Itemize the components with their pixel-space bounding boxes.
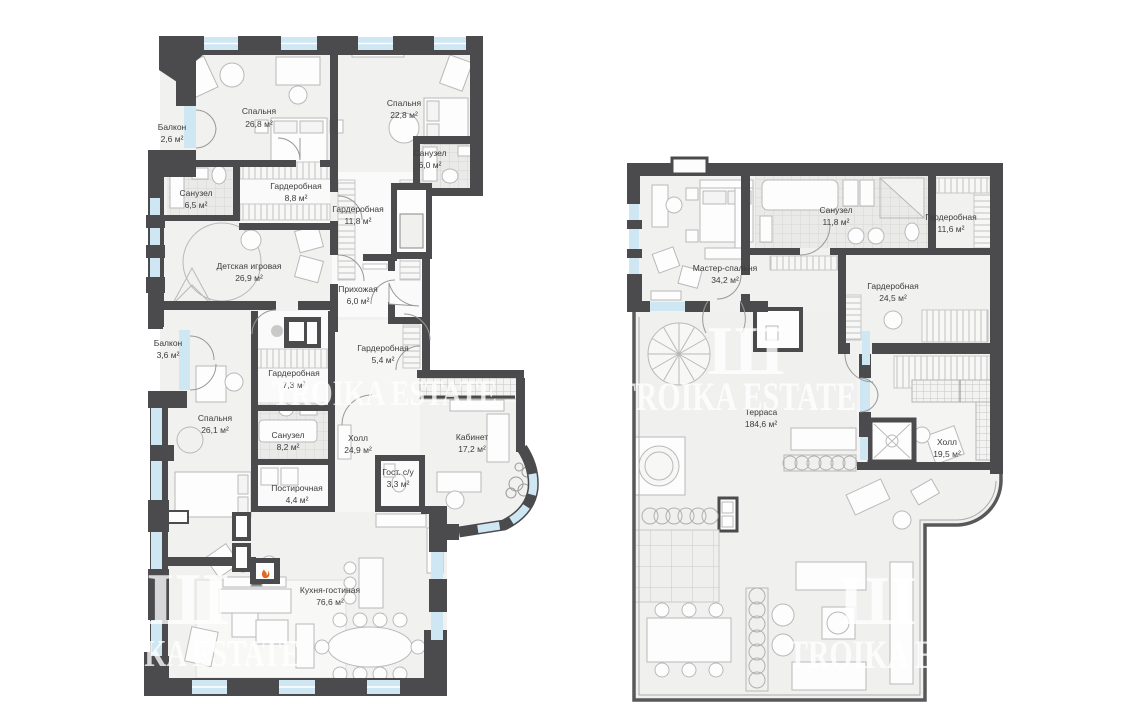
svg-text:Балкон: Балкон [158, 122, 187, 132]
svg-text:Гардеробная: Гардеробная [357, 343, 409, 353]
svg-text:Кухня-гостиная: Кухня-гостиная [300, 585, 361, 595]
svg-text:TROIKA ESTATE: TROIKA ESTATE [272, 373, 497, 413]
svg-text:8,8 м²: 8,8 м² [285, 193, 308, 203]
svg-text:3,6 м²: 3,6 м² [157, 350, 180, 360]
svg-text:11,8 м²: 11,8 м² [345, 216, 372, 226]
svg-text:Санузел: Санузел [179, 188, 212, 198]
svg-text:34,2 м²: 34,2 м² [711, 275, 739, 285]
svg-text:3,3 м²: 3,3 м² [387, 479, 410, 489]
svg-text:26,1 м²: 26,1 м² [201, 425, 229, 435]
svg-text:Кабинет: Кабинет [456, 432, 488, 442]
svg-text:4,4 м²: 4,4 м² [286, 495, 309, 505]
svg-text:22,8 м²: 22,8 м² [390, 110, 418, 120]
svg-text:Гардеробная: Гардеробная [332, 204, 384, 214]
svg-text:Санузел: Санузел [271, 430, 304, 440]
svg-text:17,2 м²: 17,2 м² [458, 444, 486, 454]
svg-text:Спальня: Спальня [198, 413, 233, 423]
svg-text:19,5 м²: 19,5 м² [933, 449, 961, 459]
svg-text:26,8 м²: 26,8 м² [245, 119, 273, 129]
svg-text:Мастер-спальня: Мастер-спальня [693, 263, 758, 273]
svg-text:6,5 м²: 6,5 м² [185, 200, 208, 210]
svg-text:8,2 м²: 8,2 м² [277, 442, 300, 452]
svg-text:TROIKA ESTATE: TROIKA ESTATE [72, 633, 300, 675]
svg-text:Гост. с/у: Гост. с/у [382, 467, 414, 477]
svg-text:Гардеробная: Гардеробная [270, 181, 322, 191]
svg-text:TROIKA ESTATE: TROIKA ESTATE [788, 632, 1028, 677]
svg-text:26,9 м²: 26,9 м² [235, 273, 263, 283]
svg-text:Прихожая: Прихожая [338, 284, 378, 294]
svg-text:Спальня: Спальня [242, 106, 277, 116]
svg-text:2,6 м²: 2,6 м² [161, 134, 184, 144]
svg-text:Санузел: Санузел [413, 148, 446, 158]
svg-text:Холл: Холл [348, 433, 368, 443]
svg-text:Гардеробная: Гардеробная [867, 281, 919, 291]
svg-text:6,0 м²: 6,0 м² [419, 160, 442, 170]
svg-text:5,4 м²: 5,4 м² [372, 355, 395, 365]
svg-text:24,9 м²: 24,9 м² [344, 445, 372, 455]
svg-text:Санузел: Санузел [819, 205, 852, 215]
svg-text:Ш: Ш [147, 559, 228, 641]
svg-text:11,6 м²: 11,6 м² [938, 224, 965, 234]
svg-text:24,5 м²: 24,5 м² [879, 293, 907, 303]
svg-text:6,0 м²: 6,0 м² [347, 296, 370, 306]
svg-text:184,6 м²: 184,6 м² [745, 419, 777, 429]
svg-text:Холл: Холл [937, 437, 957, 447]
svg-text:Детская игровая: Детская игровая [217, 261, 282, 271]
svg-text:Гардеробная: Гардеробная [925, 212, 977, 222]
svg-text:76,6 м²: 76,6 м² [316, 597, 344, 607]
svg-text:Спальня: Спальня [387, 98, 422, 108]
svg-text:Постирочная: Постирочная [271, 483, 323, 493]
svg-text:11,8 м²: 11,8 м² [823, 217, 850, 227]
svg-text:TROIKA ESTATE: TROIKA ESTATE [616, 374, 856, 419]
svg-text:Балкон: Балкон [154, 338, 183, 348]
svg-text:Ш: Ш [839, 563, 916, 640]
